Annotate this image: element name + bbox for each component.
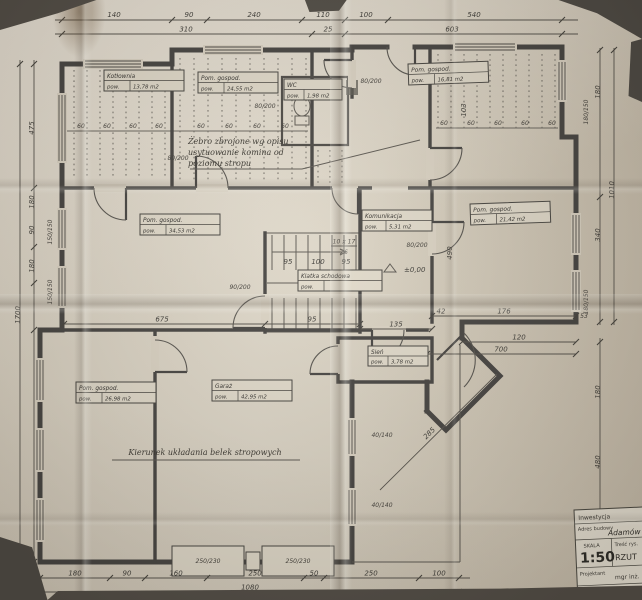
room-label-pom-gospod-3: Pom. gospod. pow. 34,53 m2	[140, 214, 220, 235]
window-size: 150/150	[47, 219, 54, 244]
room-name: Pom. gospod.	[79, 386, 119, 392]
door-size: 80/200	[360, 78, 381, 85]
door-size: 80/200	[167, 155, 188, 162]
toilet-tank	[295, 116, 309, 125]
room-label-pom-gospod-4: Pom. gospod. pow. 21,42 m2	[470, 201, 551, 225]
stair-tread: 26	[340, 249, 348, 256]
dim-spacing: 60	[253, 123, 261, 130]
dim: 53	[580, 313, 588, 320]
dim: 135	[389, 321, 403, 329]
dim: 50	[310, 570, 319, 578]
room-name: Sień	[371, 349, 384, 356]
window-size: 40/140	[371, 502, 392, 509]
room-pow: pow.	[411, 78, 425, 84]
dim: 540	[467, 11, 481, 19]
room-label-sien: Sień pow. 3,78 m2	[368, 346, 428, 366]
room-area: 13,78 m2	[133, 85, 159, 91]
dim-spacing: 60	[467, 120, 475, 127]
rebar-note: poziomu stropu	[188, 159, 251, 168]
room-label-wc: WC pow. 1,98 m2	[284, 79, 342, 100]
gate-size: 250/230	[286, 558, 311, 565]
room-name: Kotłownia	[107, 74, 136, 80]
dim: 90	[28, 225, 36, 234]
dim: 180	[28, 195, 36, 209]
dim: 100	[311, 258, 325, 266]
dim: 250	[364, 570, 378, 578]
title-block-inwestycja: Inwestycja	[578, 513, 610, 521]
window-size: 150/150	[47, 279, 54, 304]
room-pow: pow.	[473, 218, 487, 224]
room-pow: pow.	[78, 397, 92, 403]
dim: 95	[308, 316, 317, 324]
dim: 103	[460, 103, 468, 116]
gate-size: 250/230	[196, 558, 221, 565]
room-area: 26,98 m2	[105, 397, 131, 403]
dim: 1010	[608, 181, 616, 199]
room-label-pom-gospod-5: Pom. gospod. pow. 26,98 m2	[76, 382, 156, 403]
room-area: 24,55 m2	[227, 87, 253, 93]
room-pow: pow.	[214, 395, 228, 401]
room-area: 1,98 m2	[307, 94, 330, 100]
room-name: Pom. gospod.	[143, 218, 183, 224]
room-name: WC	[287, 83, 298, 89]
room-label-garaz: Garaż pow. 42,95 m2	[212, 380, 292, 401]
dim: 120	[512, 334, 526, 342]
door-size: 80/200	[406, 242, 427, 249]
dim-spacing: 60	[548, 120, 556, 127]
dim: 90	[185, 11, 194, 19]
title-block: Inwestycja Adres budowy Adamów SKALA 1:5…	[574, 507, 642, 600]
dim: 310	[179, 26, 193, 34]
dim: 490	[446, 246, 454, 260]
terrace-edge	[352, 345, 460, 562]
dim: 180	[28, 259, 36, 273]
dim-spacing: 60	[225, 123, 233, 130]
rebar-note: usytuowanie komina od	[188, 148, 284, 157]
room-pow: pow.	[300, 285, 314, 291]
rebar-note: Żebro zbrojone wg opisu	[187, 137, 289, 146]
room-label-kotlownia: Kotłownia pow. 13,78 m2	[104, 70, 184, 91]
dim: 675	[155, 316, 169, 324]
dim: 480	[594, 455, 602, 469]
room-pow: pow.	[364, 225, 378, 231]
room-label-pom-gospod-2: Pom. gospod. pow. 16,81 m2	[408, 61, 489, 85]
room-label-komunikacja: Komunikacja pow. 5,31 m2	[362, 210, 432, 231]
dim: 180	[68, 570, 82, 578]
room-label-pom-gospod-1: Pom. gospod. pow. 24,55 m2	[198, 72, 278, 93]
door-size: 80/200	[254, 103, 275, 110]
dim-spacing: 60	[155, 123, 163, 130]
door-size: 90/200	[229, 284, 250, 291]
title-block-designer-label: Projektant	[580, 571, 606, 578]
dim-spacing: 60	[103, 123, 111, 130]
dim-spacing: 60	[129, 123, 137, 130]
dim-spacing: 60	[521, 120, 529, 127]
beams-note: Kierunek układania belek stropowych	[127, 448, 281, 457]
room-name: Garaż	[215, 384, 233, 390]
floor-plan-drawing: 250/230 250/230 140 90 240 110 100 540 3…	[0, 0, 642, 600]
title-block-addr-value: Adamów	[607, 527, 642, 537]
dim: 100	[359, 11, 373, 19]
dim-spacing: 60	[77, 123, 85, 130]
window-size: 180/150	[583, 289, 590, 314]
dim: 603	[445, 26, 458, 34]
title-block-drawing-value: RZUT	[615, 552, 637, 562]
room-pow: pow.	[286, 94, 300, 100]
windows	[35, 42, 581, 542]
room-area: 5,31 m2	[389, 225, 412, 231]
room-area: 34,53 m2	[169, 229, 195, 235]
room-pow: pow.	[142, 229, 156, 235]
window-size: 180/150	[583, 99, 590, 124]
dim: 340	[594, 228, 602, 242]
room-area: 42,95 m2	[241, 395, 267, 401]
room-area: 21,42 m2	[499, 217, 526, 224]
photo-of-floor-plan: 250/230 250/230 140 90 240 110 100 540 3…	[0, 0, 642, 600]
dim: 25	[324, 26, 333, 34]
room-area: 16,81 m2	[437, 77, 464, 84]
title-block-scale-value: 1:50	[580, 549, 616, 567]
room-pow: pow.	[200, 87, 214, 93]
dim: 160	[169, 570, 183, 578]
stair-count: 10 x 17	[333, 239, 356, 246]
dim: 90	[123, 570, 132, 578]
dim: 240	[247, 11, 261, 19]
dim: 140	[107, 11, 121, 19]
dim: 42	[437, 308, 446, 316]
dim: 250	[248, 570, 262, 578]
dim-spacing: 60	[197, 123, 205, 130]
dim: 180	[594, 385, 602, 399]
room-name: Pom. gospod.	[201, 76, 241, 82]
dim: 285	[422, 426, 437, 441]
dim: 475	[28, 121, 36, 135]
dim-total: 1080	[241, 584, 259, 592]
dimension-lines	[17, 17, 617, 595]
level-symbol	[384, 264, 396, 272]
dim: 700	[494, 346, 508, 354]
dim: 95	[284, 258, 293, 266]
dim: 180	[594, 85, 602, 99]
title-block-scale-label: SKALA	[583, 543, 600, 550]
room-pow: pow.	[106, 85, 120, 91]
dim: 1700	[14, 306, 22, 324]
room-label-klatka-schodowa: Klatka schodowa pow.	[298, 270, 382, 291]
gate-pier	[246, 552, 260, 570]
level-mark: ±0,00	[404, 266, 426, 274]
room-area: 3,78 m2	[391, 360, 414, 366]
dim-spacing: 60	[494, 120, 502, 127]
title-block-drawing-label: Treść rys.	[613, 540, 638, 548]
dim: 95	[342, 258, 351, 266]
room-name: Klatka schodowa	[301, 274, 350, 280]
dim: 100	[432, 570, 446, 578]
dim-spacing: 60	[281, 123, 289, 130]
title-block-designer-value: mgr inż.	[615, 573, 640, 581]
dim: 110	[316, 11, 330, 19]
dim: 176	[497, 308, 511, 316]
dim-spacing: 60	[440, 120, 448, 127]
room-name: Komunikacja	[365, 214, 402, 220]
window-size: 40/140	[371, 432, 392, 439]
room-pow: pow.	[370, 360, 384, 366]
